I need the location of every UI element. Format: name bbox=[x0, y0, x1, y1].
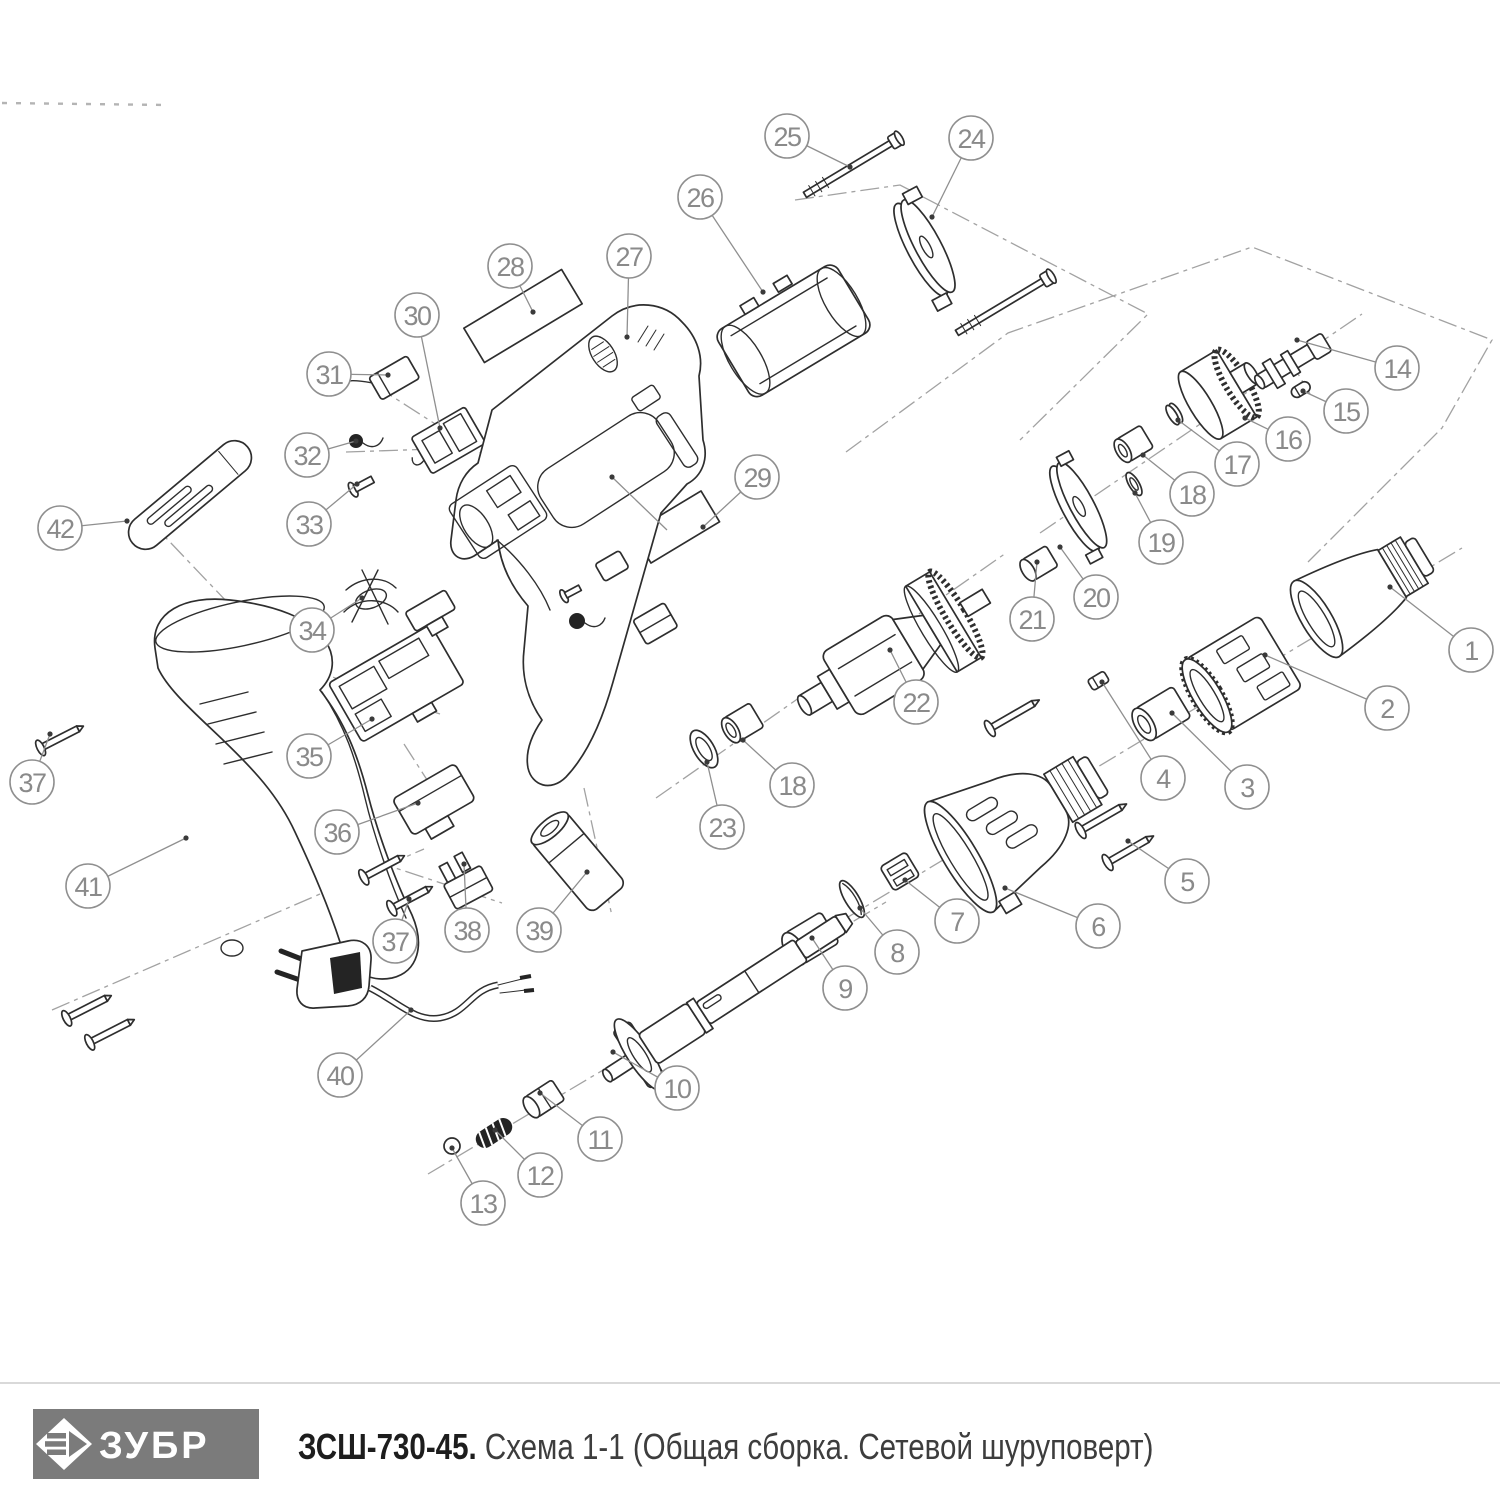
svg-text:42: 42 bbox=[46, 514, 74, 544]
svg-text:38: 38 bbox=[453, 916, 481, 946]
svg-text:37: 37 bbox=[381, 927, 409, 957]
part-2-clutch-ring bbox=[1173, 615, 1302, 739]
part-12-spring bbox=[472, 1115, 515, 1152]
callout-21: 21 bbox=[1010, 597, 1054, 641]
callout-3: 3 bbox=[1225, 765, 1269, 809]
part-39-cord-guard bbox=[526, 807, 626, 914]
callout-41: 41 bbox=[66, 864, 110, 908]
svg-text:24: 24 bbox=[957, 124, 986, 154]
callout-25: 25 bbox=[765, 114, 809, 158]
svg-text:31: 31 bbox=[315, 360, 343, 390]
svg-text:36: 36 bbox=[323, 818, 351, 848]
part-37-screw-a bbox=[34, 719, 88, 758]
callout-10: 10 bbox=[655, 1066, 699, 1110]
callout-35: 35 bbox=[287, 734, 331, 778]
svg-text:37: 37 bbox=[18, 768, 46, 798]
callout-16: 16 bbox=[1266, 417, 1310, 461]
brand-logo: ЗУБР bbox=[33, 1409, 259, 1479]
svg-text:19: 19 bbox=[1147, 528, 1175, 558]
part-20-baffle bbox=[1039, 451, 1121, 564]
part-33-screw bbox=[346, 472, 376, 498]
part-22-armature bbox=[775, 553, 1012, 750]
svg-text:3: 3 bbox=[1240, 773, 1254, 803]
callout-36: 36 bbox=[315, 810, 359, 854]
callout-34: 34 bbox=[290, 608, 334, 652]
callout-29: 29 bbox=[735, 455, 779, 499]
svg-text:6: 6 bbox=[1091, 912, 1105, 942]
svg-text:28: 28 bbox=[496, 252, 524, 282]
callout-14: 14 bbox=[1375, 346, 1419, 390]
svg-text:41: 41 bbox=[74, 872, 102, 902]
callout-37-mid: 37 bbox=[373, 919, 417, 963]
callout-33: 33 bbox=[287, 502, 331, 546]
svg-text:8: 8 bbox=[890, 938, 904, 968]
svg-text:12: 12 bbox=[526, 1161, 554, 1191]
callout-1: 1 bbox=[1449, 628, 1493, 672]
svg-text:15: 15 bbox=[1332, 397, 1360, 427]
part-41-handle bbox=[151, 585, 418, 979]
part-34-cord-knot bbox=[344, 570, 398, 624]
callout-22: 22 bbox=[894, 680, 938, 724]
svg-text:13: 13 bbox=[469, 1189, 497, 1219]
callout-15: 15 bbox=[1324, 389, 1368, 433]
part-24-baffle bbox=[881, 186, 973, 311]
svg-text:39: 39 bbox=[525, 916, 553, 946]
callout-32: 32 bbox=[285, 433, 329, 477]
drawing-subtitle: Схема 1-1 (Общая сборка. Сетевой шурупов… bbox=[477, 1426, 1154, 1467]
callout-7: 7 bbox=[935, 899, 979, 943]
callout-26: 26 bbox=[678, 175, 722, 219]
svg-text:4: 4 bbox=[1156, 764, 1171, 794]
callout-17: 17 bbox=[1215, 442, 1259, 486]
svg-text:2: 2 bbox=[1380, 694, 1394, 724]
part-16-gear bbox=[1171, 339, 1276, 445]
callout-5: 5 bbox=[1165, 859, 1209, 903]
svg-text:21: 21 bbox=[1018, 605, 1046, 635]
svg-text:40: 40 bbox=[326, 1061, 354, 1091]
svg-text:34: 34 bbox=[298, 616, 327, 646]
part-5-screw-a bbox=[982, 692, 1043, 738]
part-14-shaft bbox=[1249, 329, 1334, 396]
callout-18-left: 18 bbox=[770, 763, 814, 807]
svg-text:18: 18 bbox=[1178, 480, 1206, 510]
callout-38: 38 bbox=[445, 908, 489, 952]
callout-20: 20 bbox=[1074, 575, 1118, 619]
svg-text:7: 7 bbox=[950, 907, 964, 937]
callout-28: 28 bbox=[488, 244, 532, 288]
callout-37-left: 37 bbox=[10, 760, 54, 804]
callout-40: 40 bbox=[318, 1053, 362, 1097]
svg-text:29: 29 bbox=[743, 463, 771, 493]
svg-text:18: 18 bbox=[778, 771, 806, 801]
svg-text:20: 20 bbox=[1082, 583, 1110, 613]
part-7-clip bbox=[880, 852, 920, 891]
svg-text:32: 32 bbox=[293, 441, 321, 471]
diagram-canvas: 1 2 3 4 5 6 7 8 9 10 11 12 13 14 15 16 1… bbox=[0, 0, 1500, 1500]
footer-separator bbox=[0, 1382, 1500, 1384]
part-42-clip bbox=[122, 434, 259, 556]
svg-text:22: 22 bbox=[902, 688, 930, 718]
callout-8: 8 bbox=[875, 930, 919, 974]
svg-text:27: 27 bbox=[615, 242, 643, 272]
callout-18-right: 18 bbox=[1170, 472, 1214, 516]
brand-logo-text: ЗУБР bbox=[99, 1425, 210, 1467]
svg-text:17: 17 bbox=[1223, 450, 1251, 480]
svg-text:26: 26 bbox=[686, 183, 714, 213]
callout-19: 19 bbox=[1139, 520, 1183, 564]
callout-39: 39 bbox=[517, 908, 561, 952]
callout-23: 23 bbox=[700, 805, 744, 849]
svg-text:10: 10 bbox=[663, 1074, 691, 1104]
callout-9: 9 bbox=[823, 966, 867, 1010]
svg-text:23: 23 bbox=[708, 813, 736, 843]
part-18-bearing-right bbox=[1111, 425, 1154, 465]
edge-artifact-marks bbox=[2, 103, 168, 105]
svg-text:1: 1 bbox=[1464, 636, 1478, 666]
part-25-bolt-b bbox=[953, 268, 1058, 340]
brand-logo-mark: ЗУБР bbox=[33, 1409, 259, 1479]
svg-text:30: 30 bbox=[403, 301, 431, 331]
part-26-stator bbox=[706, 250, 876, 401]
svg-text:35: 35 bbox=[295, 742, 323, 772]
schematic-page: 1 2 3 4 5 6 7 8 9 10 11 12 13 14 15 16 1… bbox=[0, 0, 1500, 1500]
callout-13: 13 bbox=[461, 1181, 505, 1225]
part-31-brush bbox=[339, 348, 420, 415]
part-37-screw-c bbox=[83, 1012, 138, 1051]
svg-text:9: 9 bbox=[838, 974, 852, 1004]
part-38-bracket bbox=[434, 848, 494, 910]
callout-27: 27 bbox=[607, 234, 651, 278]
svg-text:14: 14 bbox=[1383, 354, 1412, 384]
part-11-sleeve bbox=[520, 1080, 565, 1121]
model-code: ЗСШ-730-45. bbox=[298, 1426, 477, 1467]
part-5-screw-c bbox=[1100, 828, 1158, 872]
callout-11: 11 bbox=[578, 1117, 622, 1161]
svg-text:11: 11 bbox=[587, 1125, 613, 1155]
svg-text:33: 33 bbox=[295, 510, 323, 540]
callout-42: 42 bbox=[38, 506, 82, 550]
callout-12: 12 bbox=[518, 1153, 562, 1197]
svg-text:16: 16 bbox=[1274, 425, 1302, 455]
svg-text:5: 5 bbox=[1180, 867, 1194, 897]
callout-31: 31 bbox=[307, 352, 351, 396]
callout-6: 6 bbox=[1076, 904, 1120, 948]
part-36-switch-cover bbox=[392, 763, 481, 846]
drawing-title: ЗСШ-730-45. Схема 1-1 (Общая сборка. Сет… bbox=[298, 1426, 1153, 1468]
callout-30: 30 bbox=[395, 293, 439, 337]
part-25-bolt-a bbox=[801, 130, 906, 202]
part-23-bearing bbox=[685, 726, 724, 772]
part-15-key bbox=[1289, 380, 1312, 400]
callout-4: 4 bbox=[1141, 756, 1185, 800]
callout-24: 24 bbox=[949, 116, 993, 160]
svg-text:25: 25 bbox=[773, 122, 801, 152]
callout-2: 2 bbox=[1365, 686, 1409, 730]
